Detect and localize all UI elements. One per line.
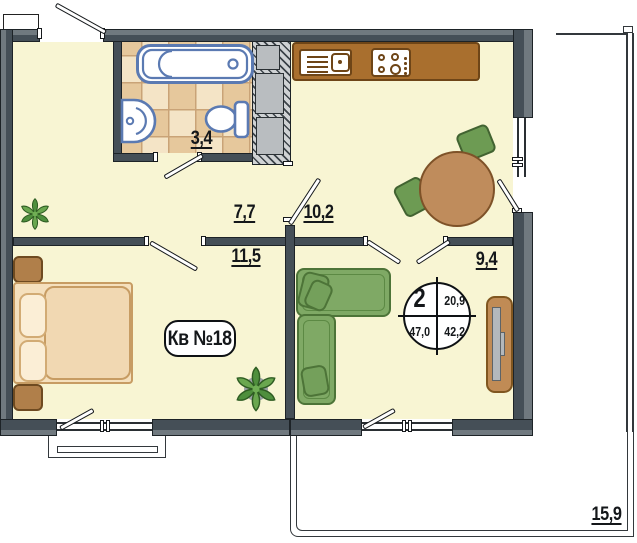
burner	[378, 54, 385, 61]
washbasin	[118, 97, 160, 145]
plant	[18, 197, 52, 231]
vent-duct-1	[256, 45, 280, 70]
living-window-frame	[362, 429, 452, 431]
bathroom-door-jamb	[153, 152, 158, 162]
burner	[378, 66, 385, 73]
plant	[232, 365, 280, 413]
bedroom-balcony-railing	[57, 446, 158, 453]
info-circle-divider-horizontal	[398, 315, 476, 317]
exterior-wall-top	[103, 29, 533, 42]
bathroom-wall-bottom-left	[113, 153, 157, 162]
burner	[391, 53, 399, 61]
stove-knob	[404, 67, 407, 70]
info-area-alt: 42,2	[438, 319, 471, 343]
kitchen-window-frame	[517, 118, 519, 177]
terrace-outline-inner	[296, 432, 628, 531]
bathroom-wall-bottom-right	[200, 153, 255, 162]
area-label-living-room: 9,4	[468, 250, 504, 269]
entrance-opening	[40, 29, 103, 42]
bedroom-window-mullion	[106, 420, 110, 432]
pillow	[19, 340, 47, 382]
exterior-wall-right-upper	[513, 29, 533, 118]
kitchen-window-frame	[524, 118, 526, 177]
kitchen-sink-unit	[299, 49, 352, 76]
burner	[390, 64, 401, 75]
exterior-wall-bottom-4	[452, 419, 533, 436]
drainboard-line	[307, 61, 328, 63]
nightstand	[13, 256, 43, 283]
nightstand	[13, 384, 43, 411]
terrace-rail-cap	[623, 26, 633, 33]
bathtub	[136, 44, 254, 84]
sofa-cushion	[300, 364, 331, 398]
drainboard-line	[307, 56, 328, 58]
kitchen-window-mullion	[512, 163, 523, 167]
info-living-area: 20,9	[438, 288, 471, 312]
vent-duct-2	[255, 73, 284, 114]
exterior-wall-right-lower	[513, 212, 533, 436]
entrance-landing	[3, 14, 39, 30]
apartment-number-badge: Кв №18	[164, 320, 236, 357]
bedroom-living-wall	[285, 225, 295, 419]
tv-bracket	[500, 332, 505, 356]
stove-knob	[404, 72, 407, 75]
terrace-rail-inner	[626, 30, 628, 432]
kitchen-window-mullion	[512, 157, 523, 161]
drainboard-line	[307, 66, 328, 68]
area-label-hallway: 7,7	[226, 203, 262, 222]
kitchen-living-wall-right	[445, 237, 513, 246]
kitchen-door-jamb	[283, 161, 293, 166]
living-window-mullion	[408, 420, 412, 432]
bed-blanket	[44, 286, 131, 380]
floor-plan: Кв №18 2 20,9 47,0 42,2 3,4 7,7 10,2 11,…	[0, 0, 637, 543]
pillow	[19, 293, 47, 338]
terrace-top-line	[556, 33, 626, 35]
living-window-mullion	[402, 420, 406, 432]
apartment-number-text: Кв №18	[168, 327, 232, 351]
area-label-terrace: 15,9	[584, 505, 628, 524]
drainboard-line	[307, 71, 328, 73]
stove-knob	[404, 57, 407, 60]
stove-knob	[404, 62, 407, 65]
bedroom-window-mullion	[100, 420, 104, 432]
area-label-kitchen: 10,2	[296, 203, 340, 222]
area-label-bathroom: 3,4	[183, 129, 219, 148]
hall-bedroom-wall-left	[13, 237, 147, 246]
exterior-wall-bottom-2	[152, 419, 290, 436]
sink-drain	[338, 60, 342, 64]
info-rooms-count: 2	[404, 283, 435, 314]
stove	[371, 48, 411, 77]
exterior-wall-left	[0, 29, 13, 436]
exterior-wall-bottom-1	[0, 419, 57, 436]
area-label-bedroom: 11,5	[224, 247, 268, 266]
bedroom-door-jamb	[144, 236, 149, 246]
bedroom-window-frame	[57, 429, 152, 431]
dining-table	[419, 151, 495, 227]
bedroom-door-jamb	[201, 236, 206, 246]
exterior-wall-bottom-3	[290, 419, 362, 436]
vent-duct-3	[256, 117, 284, 155]
terrace-rail-outer	[632, 33, 634, 432]
entrance-jamb	[37, 28, 42, 39]
info-total-area: 47,0	[403, 319, 436, 343]
